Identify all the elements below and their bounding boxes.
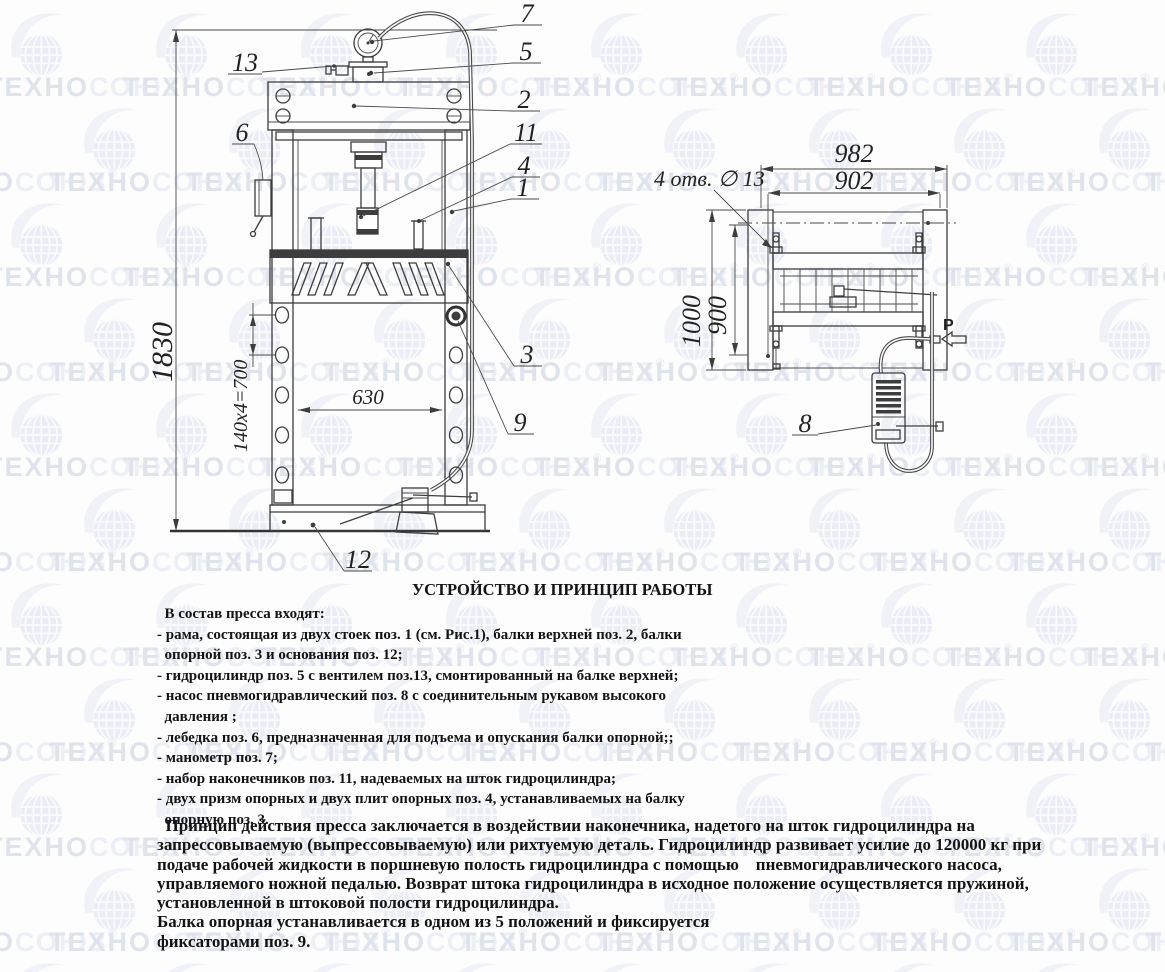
globe-watermark-icon xyxy=(1023,957,1087,972)
callout-7-gauge: 7 xyxy=(521,0,535,28)
dim-width-label: 630 xyxy=(352,385,384,409)
principle-line: запрессовываемую (выпрессовываемую) или … xyxy=(157,835,1041,854)
pressure-gauge xyxy=(354,29,382,62)
dim-1000-label: 1000 xyxy=(677,295,706,347)
dim-hole-spacing-label: 140x4=700 xyxy=(230,360,252,452)
callout-9-fixator: 9 xyxy=(514,408,527,437)
globe-watermark-icon xyxy=(298,957,362,972)
watermark-brand-text: ТЕХНОСОЮЗ® xyxy=(1082,262,1165,291)
watermark-brand-text: ТЕХНОСОЮЗ® xyxy=(1082,642,1165,671)
callout-13-valve: 13 xyxy=(232,48,258,77)
callout-11-nozzle: 11 xyxy=(514,118,538,147)
press-base xyxy=(170,505,490,531)
beam-plan xyxy=(773,253,937,326)
callout-5-cylinder: 5 xyxy=(520,37,533,66)
dim-982-label: 982 xyxy=(835,140,874,168)
callout-12-base: 12 xyxy=(345,545,371,574)
composition-line: - набор наконечников поз. 11, надеваемых… xyxy=(157,769,685,790)
dim-900: 900 xyxy=(703,225,748,355)
callout-6-winch: 6 xyxy=(236,118,249,147)
dim-height-label: 1830 xyxy=(150,322,179,382)
top-view-drawing: 982 902 1000 900 xyxy=(630,140,1060,580)
watermark-brand-text: ТЕХНОСОЮЗ® xyxy=(1145,547,1165,576)
composition-line: В состав пресса входят: xyxy=(157,604,685,625)
front-callouts xyxy=(228,25,542,571)
globe-watermark-icon xyxy=(733,957,797,972)
principle-line: Принцип действия пресса заключается в во… xyxy=(157,816,1041,835)
beam-slots xyxy=(292,263,444,295)
principle-line: подаче рабочей жидкости в поршневую поло… xyxy=(157,855,1041,874)
callout-8-pump: 8 xyxy=(799,409,812,438)
top-beam xyxy=(268,82,470,140)
foot-pedal-assembly xyxy=(340,488,477,534)
principle-line: фиксаторами поз. 9. xyxy=(157,932,1041,951)
globe-watermark-icon xyxy=(443,957,507,972)
section-title: УСТРОЙСТВО И ПРИНЦИП РАБОТЫ xyxy=(412,580,712,600)
dim-900-label: 900 xyxy=(703,296,732,335)
composition-line: давления ; xyxy=(157,707,685,728)
composition-line: - лебедка поз. 6, предназначенная для по… xyxy=(157,728,685,749)
globe-watermark-icon xyxy=(8,957,72,972)
composition-line: - гидроцилиндр поз. 5 с вентилем поз.13,… xyxy=(157,666,685,687)
globe-watermark-icon xyxy=(588,957,652,972)
principle-line: управляемого ножной педалью. Возврат што… xyxy=(157,874,1041,893)
release-valve xyxy=(326,66,348,75)
watermark-brand-text: ТЕХНОСОЮЗ® xyxy=(1082,72,1165,101)
composition-line: - манометр поз. 7; xyxy=(157,748,685,769)
composition-list: В состав пресса входят:- рама, состоящая… xyxy=(157,604,685,831)
watermark-brand-text: ТЕХНОСОЮЗ® xyxy=(1145,927,1165,956)
front-view-drawing: 1830 xyxy=(150,0,590,585)
cylinder-head xyxy=(349,62,387,82)
holes-note-label: 4 отв. ∅ 13 xyxy=(654,166,765,191)
page: ТЕХНОСОЮЗ®ТЕХНОСОЮЗ®ТЕХНОСОЮЗ®ТЕХНОСОЮЗ®… xyxy=(0,0,1165,972)
composition-line: опорной поз. 3 и основания поз. 12; xyxy=(157,645,685,666)
fixator-pin xyxy=(447,307,465,325)
support-beam xyxy=(270,250,468,303)
globe-watermark-icon xyxy=(153,957,217,972)
callout-2-top-beam: 2 xyxy=(518,85,531,114)
composition-line: - рама, состоящая из двух стоек поз. 1 (… xyxy=(157,625,685,646)
winch xyxy=(251,180,272,237)
globe-watermark-icon xyxy=(878,957,942,972)
principle-line: Балка опорная устанавливается в одном из… xyxy=(157,912,1041,931)
principle-paragraph: Принцип действия пресса заключается в во… xyxy=(157,816,1041,951)
press-columns xyxy=(272,130,467,505)
dim-902: 902 xyxy=(766,166,940,358)
dim-width-630: 630 xyxy=(298,385,442,413)
watermark-brand-text: ТЕХНОСОЮЗ® xyxy=(1145,357,1165,386)
watermark-brand-text: ТЕХНОСОЮЗ® xyxy=(1082,832,1165,861)
watermark-brand-text: ТЕХНОСОЮЗ® xyxy=(1008,737,1165,766)
dim-hole-spacing: 140x4=700 xyxy=(230,303,275,452)
callout-3-support-beam: 3 xyxy=(520,340,534,369)
principle-line: установленной в штоковой полости гидроци… xyxy=(157,893,1041,912)
cylinder-ram xyxy=(351,142,386,234)
callout-1-column: 1 xyxy=(517,173,530,202)
composition-line: - двух призм опорных и двух плит опорных… xyxy=(157,789,685,810)
watermark-brand-text: ТЕХНОСОЮЗ® xyxy=(1145,737,1165,766)
watermark-brand-text: ТЕХНОСОЮЗ® xyxy=(1082,452,1165,481)
holes-note: 4 отв. ∅ 13 xyxy=(654,166,772,248)
side-plates xyxy=(738,210,956,370)
pressure-inlet: P xyxy=(930,317,966,346)
watermark-brand-text: ТЕХНОСОЮЗ® xyxy=(1145,167,1165,196)
composition-line: - насос пневмогидравлический поз. 8 с со… xyxy=(157,686,685,707)
dim-902-label: 902 xyxy=(835,166,874,195)
